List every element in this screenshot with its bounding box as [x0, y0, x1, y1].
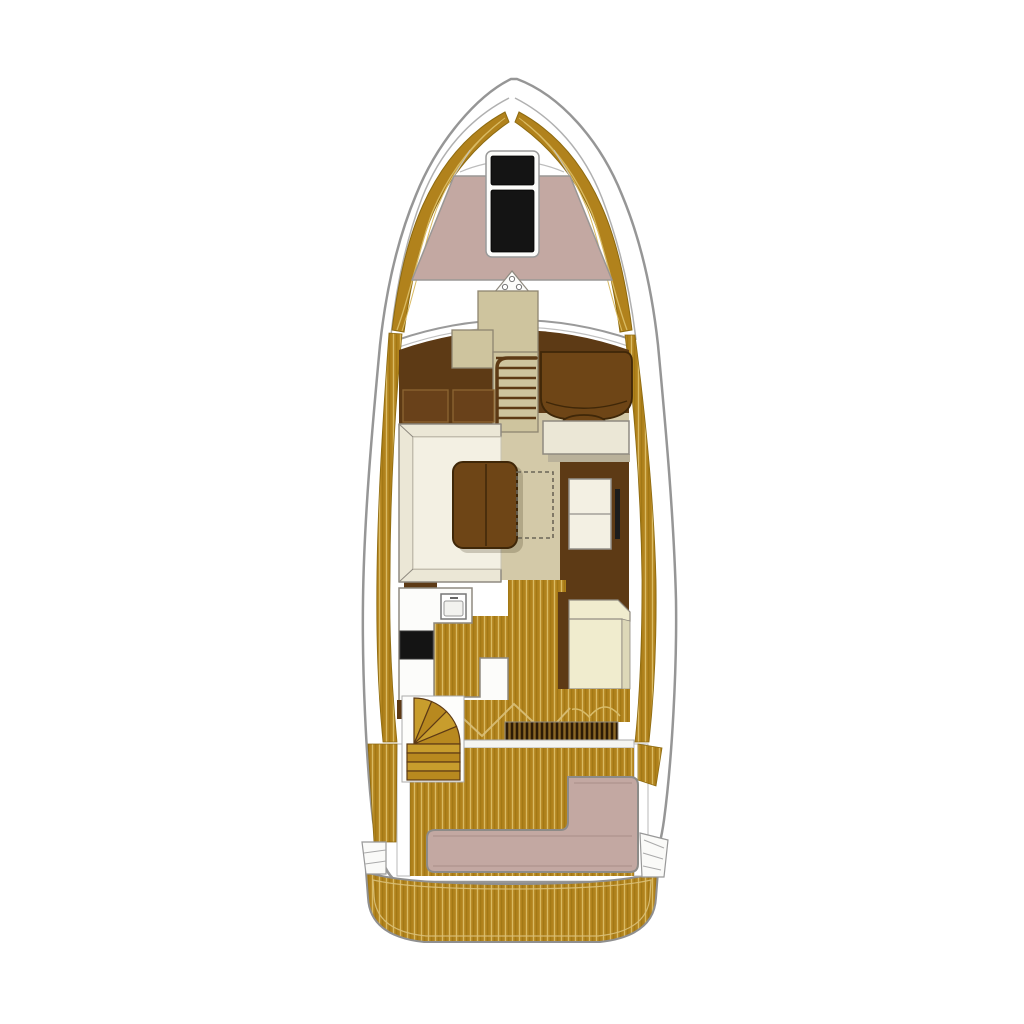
- deck-plan-canvas: Motor yacht top-view deck floor plan: [0, 0, 1024, 1024]
- stair-shaft: [493, 352, 538, 432]
- starboard-wall-slot: [615, 489, 620, 539]
- foredeck-hatch-front: [491, 156, 534, 185]
- chaise-side-shade: [622, 619, 630, 689]
- sideboard-shadow: [548, 454, 630, 462]
- galley-cooktop: [400, 631, 433, 659]
- galley-sink-basin: [444, 601, 463, 616]
- helm-console-step: [452, 330, 493, 368]
- foredeck-hatch-main: [491, 190, 534, 252]
- port-cabinet-left: [403, 390, 448, 422]
- engine-vent-grate: [505, 722, 618, 740]
- chaise-seat: [569, 619, 622, 689]
- deck-plan: Motor yacht top-view deck floor plan: [0, 0, 1024, 1024]
- anchor-fitting-dot-top: [509, 276, 514, 281]
- companionway-stairs: [496, 358, 536, 418]
- helm-seat: [541, 352, 632, 419]
- salon-sideboard: [543, 421, 629, 454]
- salon-table: [453, 462, 517, 548]
- cockpit-door-threshold: [444, 740, 634, 748]
- anchor-fitting-dot-right: [516, 284, 521, 289]
- stern-steps-port: [362, 842, 386, 874]
- chaise-backrest: [569, 600, 630, 621]
- cockpit-stairs-steps: [407, 744, 460, 780]
- anchor-fitting-dot-left: [502, 284, 507, 289]
- companionway-walkway: [508, 580, 566, 618]
- cockpit-side-deck-port: [368, 744, 397, 842]
- port-cabinet-right: [453, 390, 494, 422]
